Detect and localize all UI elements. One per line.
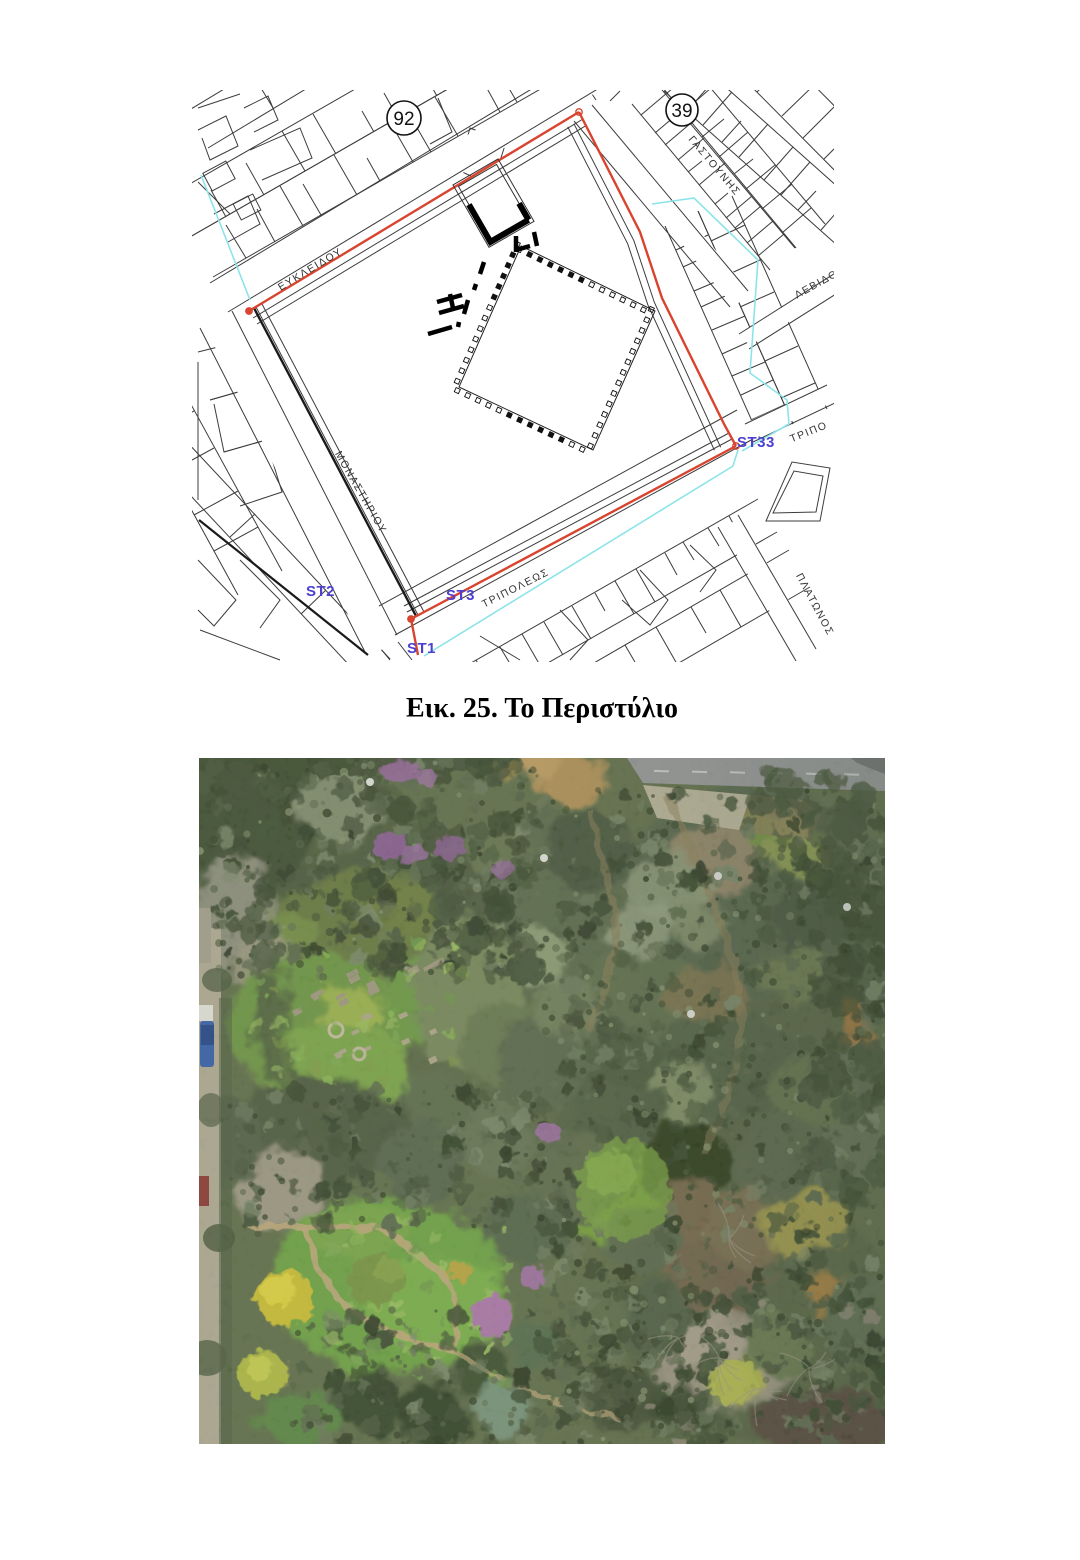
svg-text:ST2: ST2 xyxy=(306,583,335,600)
svg-text:ST3: ST3 xyxy=(446,587,475,604)
svg-text:ST1: ST1 xyxy=(407,640,436,657)
svg-text:ST33: ST33 xyxy=(737,434,775,451)
svg-text:ΤΡΙΠΟ: ΤΡΙΠΟ xyxy=(788,419,829,445)
svg-text:39: 39 xyxy=(671,101,692,122)
svg-text:92: 92 xyxy=(393,109,414,130)
